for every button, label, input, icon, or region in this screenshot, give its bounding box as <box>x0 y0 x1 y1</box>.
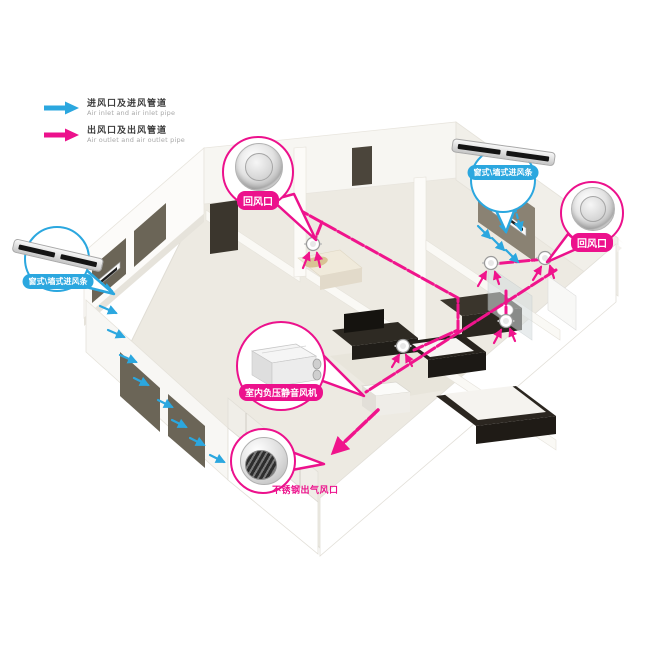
callout-label-silent-fan: 室内负压静音风机 <box>239 384 323 401</box>
ventilation-system-diagram: 进风口及进风管道 Air inlet and air inlet pipe 出风… <box>0 0 650 656</box>
magenta-flow-arrow-icon <box>44 128 80 142</box>
legend-inlet-label-zh: 进风口及进风管道 <box>87 99 175 109</box>
legend-item-inlet: 进风口及进风管道 Air inlet and air inlet pipe <box>44 99 185 117</box>
legend-item-outlet: 出风口及出风管道 Air outlet and air outlet pipe <box>44 126 185 144</box>
legend: 进风口及进风管道 Air inlet and air inlet pipe 出风… <box>44 99 185 153</box>
round-diffuser-icon <box>571 187 615 231</box>
fan-unit-in-room <box>362 382 410 416</box>
callout-label-inlet-strip-left: 窗式\墙式进风条 <box>23 274 94 289</box>
callout-label-steel-outlet: 不锈钢出气风口 <box>272 483 339 496</box>
callout-label-inlet-strip-right: 窗式\墙式进风条 <box>468 165 539 180</box>
blue-flow-arrow-icon <box>44 101 80 115</box>
callout-label-return-air-top: 回风口 <box>237 191 279 210</box>
callout-label-return-air-right: 回风口 <box>571 233 613 252</box>
round-diffuser-icon <box>235 143 283 191</box>
legend-outlet-label-zh: 出风口及出风管道 <box>87 126 185 136</box>
legend-outlet-label-en: Air outlet and air outlet pipe <box>87 136 185 144</box>
legend-inlet-label-en: Air inlet and air inlet pipe <box>87 109 175 117</box>
steel-vent-icon <box>240 437 288 485</box>
